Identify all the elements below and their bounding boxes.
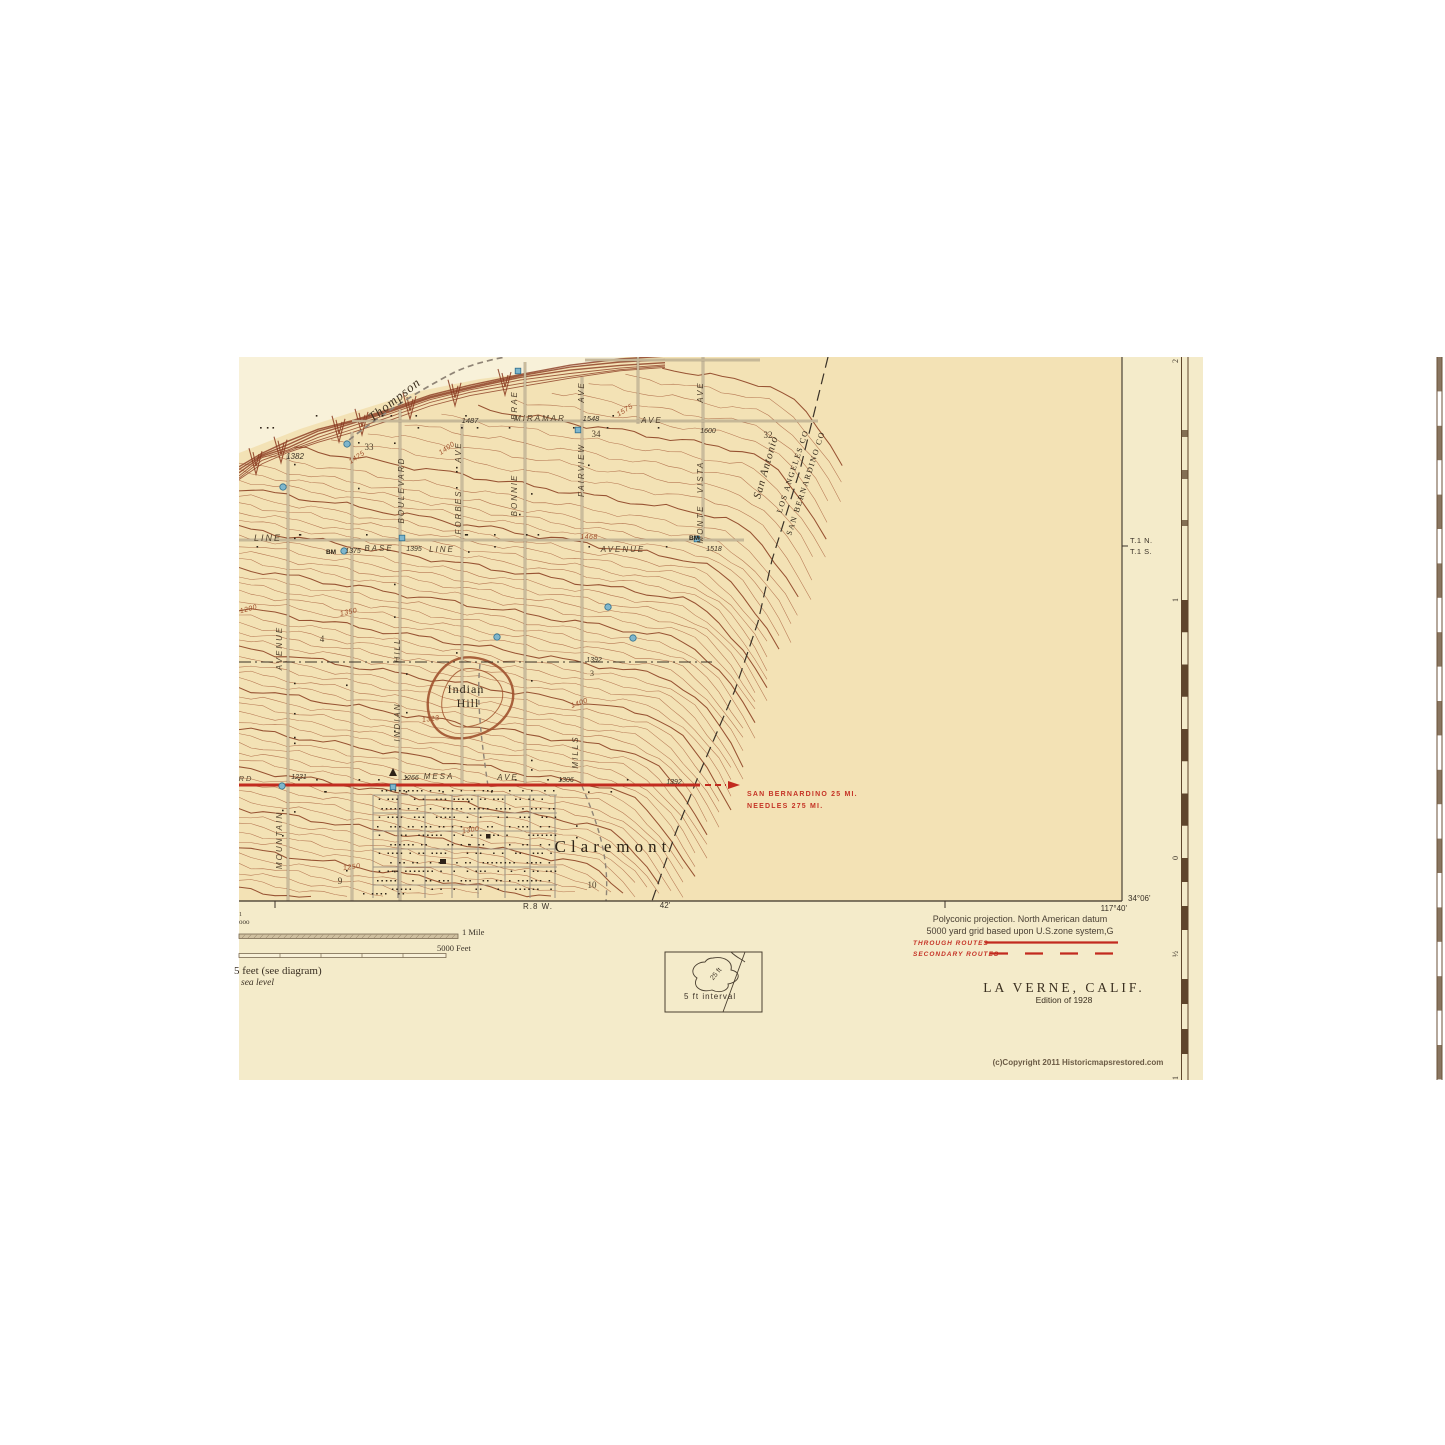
edge-block (1437, 976, 1442, 1010)
house-dot (442, 791, 444, 793)
building-dot (528, 817, 530, 819)
building-dot (430, 826, 432, 828)
house-dot (325, 791, 327, 793)
building-dot (412, 844, 414, 846)
water-symbol (494, 634, 500, 640)
building-dot (518, 880, 520, 882)
feet-scale-label: 5000 Feet (437, 943, 471, 953)
building-dot (418, 871, 420, 873)
house-dot (406, 712, 408, 714)
map-label-elev: 1231 (291, 774, 307, 781)
bar-scale-number: 0 (1171, 856, 1180, 860)
building-dot (462, 799, 464, 801)
building-dot (480, 889, 482, 891)
building-dot (518, 826, 520, 828)
datum-note: sea level (241, 978, 274, 988)
building-dot (388, 853, 390, 855)
building-dot (401, 889, 403, 891)
feet-scale-bar (239, 954, 446, 958)
building-dot (425, 826, 427, 828)
house-dot (316, 415, 318, 417)
map-label-sec: 32 (764, 430, 773, 440)
building-dot (421, 826, 423, 828)
building-dot (417, 790, 419, 792)
map-label-street: BRAE (510, 390, 519, 420)
building-dot (469, 880, 471, 882)
building-dot (388, 817, 390, 819)
building-dot (524, 817, 526, 819)
building-dot (440, 817, 442, 819)
building-dot (392, 817, 394, 819)
map-label-street: AVE (640, 416, 663, 425)
secondary-routes-label: SECONDARY ROUTES (913, 951, 999, 958)
la-verne-topo-map: ThompsonSan AntonioLOS ANGELES COSAN BER… (0, 0, 1445, 1445)
map-label-sec: 34 (592, 429, 602, 439)
map-label-street: LINE (254, 533, 282, 543)
building-dot (509, 844, 511, 846)
building-dot (533, 889, 535, 891)
building-dot (401, 835, 403, 837)
building-dot (522, 844, 524, 846)
building-dot (440, 853, 442, 855)
house-dot (294, 464, 296, 466)
range-label: R.8 W. (523, 902, 553, 911)
building-dot (401, 817, 403, 819)
house-dot (531, 680, 533, 682)
building-dot (396, 871, 398, 873)
building-dot (381, 893, 383, 895)
house-dot (588, 546, 590, 548)
map-label-bm: BM (326, 549, 336, 556)
edge-block (1437, 1045, 1442, 1079)
building-dot (535, 862, 537, 864)
corner-latitude: 34°06' (1128, 894, 1151, 903)
building-dot (417, 808, 419, 810)
map-label-street: FORBES (454, 490, 463, 535)
building-dot (452, 844, 454, 846)
building-dot (487, 826, 489, 828)
building-dot (487, 790, 489, 792)
building-dot (471, 835, 473, 837)
building-dot (399, 844, 401, 846)
building-dot (467, 817, 469, 819)
building-dot (496, 880, 498, 882)
building-dot (515, 889, 517, 891)
projection-note-line2: 5000 yard grid based upon U.S.zone syste… (926, 926, 1113, 936)
building-dot (447, 808, 449, 810)
map-label-street: MESA (424, 772, 455, 781)
map-label-sec: 4 (320, 634, 325, 644)
map-label-elev: 1600 (700, 428, 716, 435)
building-dot (443, 808, 445, 810)
building-dot (405, 889, 407, 891)
bar-scale-number: ½ (1171, 951, 1180, 957)
building-dot (399, 790, 401, 792)
building-dot (540, 880, 542, 882)
building-dot (549, 880, 551, 882)
house-dot (316, 779, 318, 781)
building-dot (412, 880, 414, 882)
building-dot (531, 880, 533, 882)
building-dot (376, 893, 378, 895)
building-dot (527, 844, 529, 846)
building-dot (506, 835, 508, 837)
building-dot (513, 862, 515, 864)
bar-scale-block (1182, 979, 1189, 1004)
building-dot (484, 871, 486, 873)
building-dot (395, 844, 397, 846)
building-large (440, 859, 446, 864)
building-dot (531, 790, 533, 792)
copyright-note: (c)Copyright 2011 Historicmapsrestored.c… (993, 1058, 1164, 1067)
house-dot (466, 534, 468, 536)
building-dot (515, 799, 517, 801)
building-dot (425, 880, 427, 882)
building-dot (381, 808, 383, 810)
map-label-street: INDIAN (393, 702, 402, 741)
building-dot (527, 862, 529, 864)
edge-block (1437, 907, 1442, 941)
scale-fragment: ooo (239, 918, 250, 926)
house-dot (418, 427, 420, 429)
edge-block (1437, 632, 1442, 666)
building-dot (522, 826, 524, 828)
map-label-sec: 3 (590, 669, 594, 678)
building-dot (546, 817, 548, 819)
building-dot (550, 889, 552, 891)
building-dot (528, 799, 530, 801)
building-dot (423, 799, 425, 801)
building-dot (480, 835, 482, 837)
building-dot (379, 799, 381, 801)
building-dot (487, 862, 489, 864)
building-dot (456, 862, 458, 864)
house-dot (456, 652, 458, 654)
map-label-street: VISTA (696, 461, 705, 494)
building-dot (436, 853, 438, 855)
bar-scale-mark (1182, 430, 1189, 437)
corner-longitude: 117°40' (1101, 904, 1128, 913)
building-dot (398, 893, 400, 895)
map-label-street: FAIRVIEW (577, 443, 586, 497)
building-dot (476, 853, 478, 855)
house-dot (260, 427, 262, 429)
building-dot (546, 871, 548, 873)
building-dot (540, 808, 542, 810)
building-dot (549, 826, 551, 828)
building-dot (533, 835, 535, 837)
bar-scale-block (1182, 858, 1189, 882)
building-dot (454, 871, 456, 873)
map-label-street: BONNIE (510, 474, 519, 517)
building-dot (392, 853, 394, 855)
projection-note-line1: Polyconic projection. North American dat… (933, 914, 1108, 924)
building-dot (439, 826, 441, 828)
building-dot (425, 844, 427, 846)
building-dot (401, 853, 403, 855)
building-dot (447, 844, 449, 846)
house-dot (267, 427, 269, 429)
building-dot (412, 826, 414, 828)
map-label-street: MOUNTAIN (275, 811, 284, 869)
building-dot (449, 817, 451, 819)
building-dot (524, 889, 526, 891)
township-south-label: T.1 S. (1130, 547, 1152, 556)
bar-scale-block (1182, 665, 1189, 697)
house-dot (257, 546, 259, 548)
house-dot (627, 779, 629, 781)
building-dot (533, 853, 535, 855)
building-dot (498, 889, 500, 891)
inset-caption: 5 ft interval (684, 992, 736, 1001)
building-dot (478, 808, 480, 810)
bar-scale-block (1182, 729, 1189, 761)
building-dot (445, 817, 447, 819)
building-dot (390, 808, 392, 810)
building-dot (458, 799, 460, 801)
building-dot (432, 889, 434, 891)
map-label-red: SAN BERNARDINO 25 MI. (747, 791, 858, 798)
edge-block (1437, 701, 1442, 735)
building-dot (386, 790, 388, 792)
building-dot (454, 817, 456, 819)
building-dot (396, 889, 398, 891)
building-dot (483, 880, 485, 882)
building-dot (467, 799, 469, 801)
house-dot (610, 791, 612, 793)
house-dot (468, 801, 470, 803)
edge-block (1437, 495, 1442, 529)
building-dot (403, 790, 405, 792)
house-dot (358, 442, 360, 444)
building-dot (537, 853, 539, 855)
building-dot (537, 871, 539, 873)
reservoir-symbol (399, 535, 405, 541)
building-dot (491, 862, 493, 864)
building-dot (474, 790, 476, 792)
building-dot (405, 871, 407, 873)
page-edge-bar (1437, 357, 1442, 1080)
building-dot (390, 862, 392, 864)
building-dot (527, 880, 529, 882)
house-dot (294, 538, 296, 540)
building-dot (440, 835, 442, 837)
building-dot (390, 844, 392, 846)
edge-block (1437, 426, 1442, 460)
building-dot (396, 799, 398, 801)
building-dot (421, 790, 423, 792)
building-dot (467, 871, 469, 873)
map-label-street: LINE (429, 545, 455, 554)
building-dot (461, 826, 463, 828)
building-dot (502, 799, 504, 801)
contour-interval-note: 5 feet (see diagram) (234, 965, 322, 977)
building-dot (461, 844, 463, 846)
map-label-street: AVENUE (275, 626, 284, 671)
house-dot (531, 769, 533, 771)
house-dot (294, 713, 296, 715)
building-dot (509, 826, 511, 828)
bar-scale-number: 2 (1171, 359, 1180, 363)
house-dot (531, 493, 533, 495)
building-dot (520, 799, 522, 801)
building-dot (454, 889, 456, 891)
bar-scale-mark (1182, 520, 1189, 526)
building-dot (509, 880, 511, 882)
building-dot (550, 871, 552, 873)
building-dot (500, 880, 502, 882)
building-dot (399, 862, 401, 864)
building-dot (427, 835, 429, 837)
map-label-elev: 1382 (286, 452, 304, 461)
house-dot (294, 811, 296, 813)
building-dot (522, 808, 524, 810)
building-dot (386, 880, 388, 882)
building-dot (395, 826, 397, 828)
building-dot (410, 871, 412, 873)
building-dot (487, 880, 489, 882)
building-dot (443, 880, 445, 882)
water-symbol (605, 604, 611, 610)
house-dot (465, 534, 467, 536)
building-dot (511, 871, 513, 873)
house-dot (394, 584, 396, 586)
building-dot (388, 799, 390, 801)
building-dot (452, 808, 454, 810)
map-label-street: BOULEVARD (397, 457, 406, 524)
house-dot (461, 427, 463, 429)
house-dot (272, 427, 274, 429)
building-dot (452, 790, 454, 792)
building-dot (483, 808, 485, 810)
building-dot (403, 862, 405, 864)
building-dot (452, 826, 454, 828)
building-dot (403, 844, 405, 846)
house-dot (300, 534, 302, 536)
building-dot (372, 893, 374, 895)
building-dot (417, 862, 419, 864)
building-dot (412, 790, 414, 792)
house-dot (588, 791, 590, 793)
building-dot (396, 853, 398, 855)
house-dot (491, 791, 493, 793)
building-dot (535, 880, 537, 882)
building-dot (432, 871, 434, 873)
map-label-bm: BM (689, 535, 699, 542)
map-label-red: NEEDLES 275 MI. (747, 803, 823, 810)
building-dot (443, 826, 445, 828)
building-dot (399, 826, 401, 828)
building-dot (498, 871, 500, 873)
house-dot (406, 791, 408, 793)
building-dot (439, 880, 441, 882)
building-dot (461, 790, 463, 792)
water-symbol (280, 484, 286, 490)
building-dot (493, 799, 495, 801)
building-dot (493, 835, 495, 837)
building-dot (386, 808, 388, 810)
building-dot (509, 862, 511, 864)
building-dot (399, 808, 401, 810)
building-dot (430, 790, 432, 792)
house-dot (658, 427, 660, 429)
building-dot (553, 790, 555, 792)
reservoir-symbol (575, 427, 581, 433)
house-dot (494, 534, 496, 536)
building-dot (505, 862, 507, 864)
house-dot (456, 471, 458, 473)
building-dot (537, 889, 539, 891)
building-dot (524, 871, 526, 873)
map-label-conlbl: 1468 (580, 534, 598, 541)
building-dot (405, 835, 407, 837)
township-north-label: T.1 N. (1130, 536, 1153, 545)
building-dot (528, 889, 530, 891)
house-dot (519, 514, 521, 516)
house-dot (415, 415, 417, 417)
building-dot (522, 790, 524, 792)
building-dot (531, 862, 533, 864)
house-dot (294, 683, 296, 685)
scanned-map-page: ThompsonSan AntonioLOS ANGELES COSAN BER… (0, 0, 1445, 1445)
building-dot (498, 817, 500, 819)
reservoir-symbol (515, 368, 521, 374)
building-dot (555, 871, 557, 873)
house-dot (366, 534, 368, 536)
building-dot (408, 808, 410, 810)
building-dot (414, 817, 416, 819)
building-dot (408, 844, 410, 846)
house-dot (612, 415, 614, 417)
building-dot (474, 808, 476, 810)
map-label-street: AVE (496, 773, 519, 782)
building-dot (502, 853, 504, 855)
minutes-label: 42' (660, 901, 671, 910)
building-dot (408, 826, 410, 828)
building-dot (476, 889, 478, 891)
building-dot (533, 871, 535, 873)
building-dot (487, 808, 489, 810)
map-label-elev: 1395 (406, 546, 422, 553)
building-dot (515, 853, 517, 855)
building-dot (392, 889, 394, 891)
building-dot (461, 808, 463, 810)
building-dot (436, 799, 438, 801)
map-label-sec: 9 (338, 876, 343, 886)
building-dot (555, 835, 557, 837)
house-dot (547, 779, 549, 781)
building-dot (527, 826, 529, 828)
map-label-sec: 10 (588, 880, 598, 890)
building-dot (467, 853, 469, 855)
house-dot (538, 534, 540, 536)
building-dot (377, 880, 379, 882)
building-dot (392, 799, 394, 801)
map-label-elev: 1392 (666, 779, 682, 786)
building-dot (430, 808, 432, 810)
building-dot (549, 808, 551, 810)
house-dot (358, 488, 360, 490)
water-symbol (279, 783, 285, 789)
bar-scale-block (1182, 600, 1189, 632)
building-dot (379, 853, 381, 855)
building-dot (421, 844, 423, 846)
building-dot (390, 826, 392, 828)
house-dot (588, 464, 590, 466)
edge-block (1437, 563, 1442, 597)
building-dot (528, 835, 530, 837)
building-dot (461, 880, 463, 882)
